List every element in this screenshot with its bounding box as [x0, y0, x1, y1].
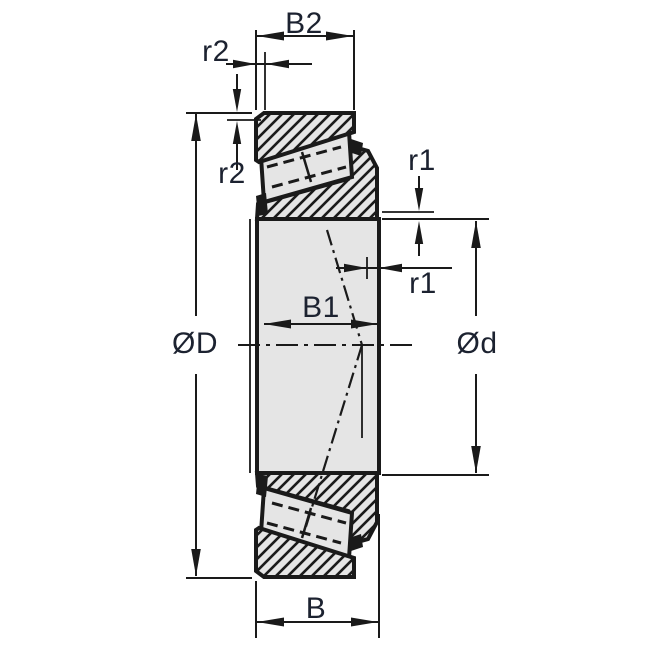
cage-fragment-top-left — [256, 193, 268, 216]
dimension-label-r1-top: r1 — [408, 146, 436, 176]
dimension-label-r1-right: r1 — [409, 269, 437, 299]
dimension-label-r2-top: r2 — [202, 37, 230, 67]
drawing-canvas — [0, 0, 670, 670]
dimension-label-r2-left: r2 — [218, 159, 246, 189]
dimension-label-bore-diameter: Ød — [456, 329, 497, 359]
dim-r1-vertical — [382, 176, 434, 256]
dimension-label-b1: B1 — [302, 293, 340, 323]
cage-fragment-bottom-left — [256, 474, 268, 497]
bearing-dimension-drawing: B2 r2 r2 r1 r1 B1 ØD Ød B — [0, 0, 670, 670]
dim-b2 — [256, 30, 354, 110]
dimension-label-b: B — [306, 594, 327, 624]
dimension-label-b2: B2 — [285, 9, 323, 39]
dimension-label-outer-diameter: ØD — [172, 329, 218, 359]
